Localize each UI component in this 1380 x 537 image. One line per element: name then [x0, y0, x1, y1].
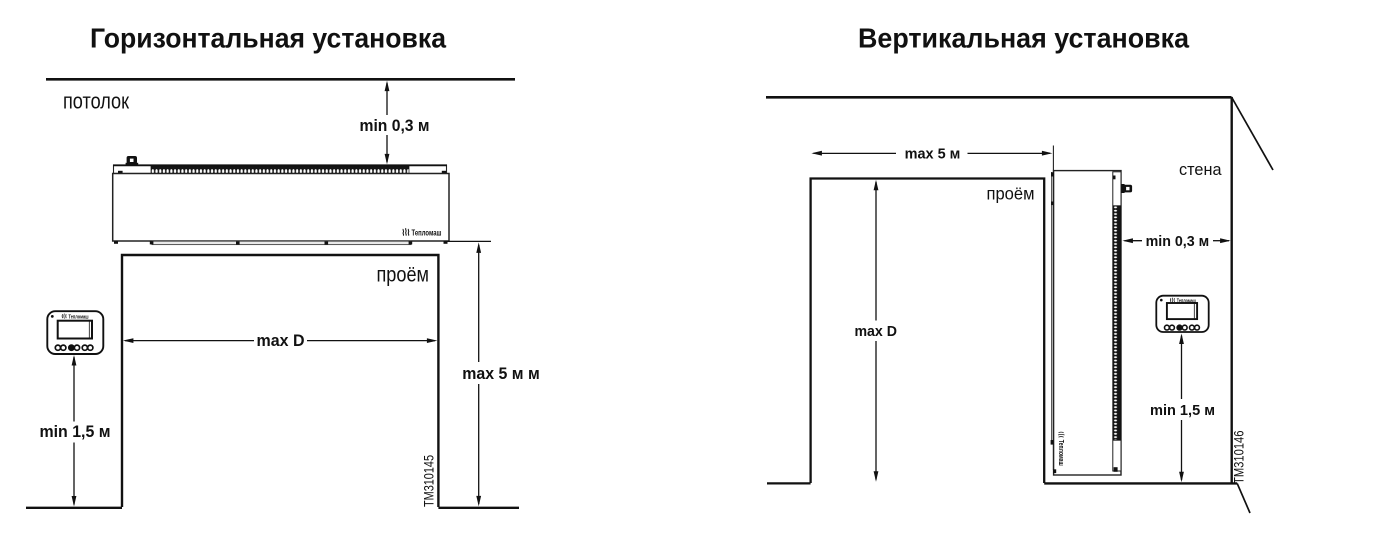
svg-text:TM310146: TM310146 [1231, 431, 1246, 485]
svg-text:max D: max D [257, 331, 305, 350]
svg-text:max 5 м: max 5 м [905, 146, 961, 162]
svg-text:min 0,3 м: min 0,3 м [1146, 234, 1210, 250]
svg-text:потолок: потолок [63, 88, 129, 113]
svg-text:Тепломаш: Тепломаш [1057, 440, 1064, 466]
svg-text:проём: проём [377, 264, 430, 287]
svg-text:Горизонтальная установка: Горизонтальная установка [90, 22, 446, 53]
svg-text:проём: проём [987, 184, 1035, 204]
svg-text:min 1,5 м: min 1,5 м [1150, 403, 1215, 419]
svg-text:min 1,5 м: min 1,5 м [40, 422, 111, 441]
svg-text:max 5 м м: max 5 м м [462, 364, 540, 383]
svg-text:Вертикальная установка: Вертикальная установка [858, 22, 1189, 53]
svg-text:max D: max D [854, 324, 897, 340]
svg-text:стена: стена [1179, 160, 1222, 179]
svg-text:Тепломаш: Тепломаш [412, 229, 442, 238]
svg-text:min 0,3 м: min 0,3 м [360, 116, 430, 135]
svg-text:TM310145: TM310145 [421, 455, 436, 507]
